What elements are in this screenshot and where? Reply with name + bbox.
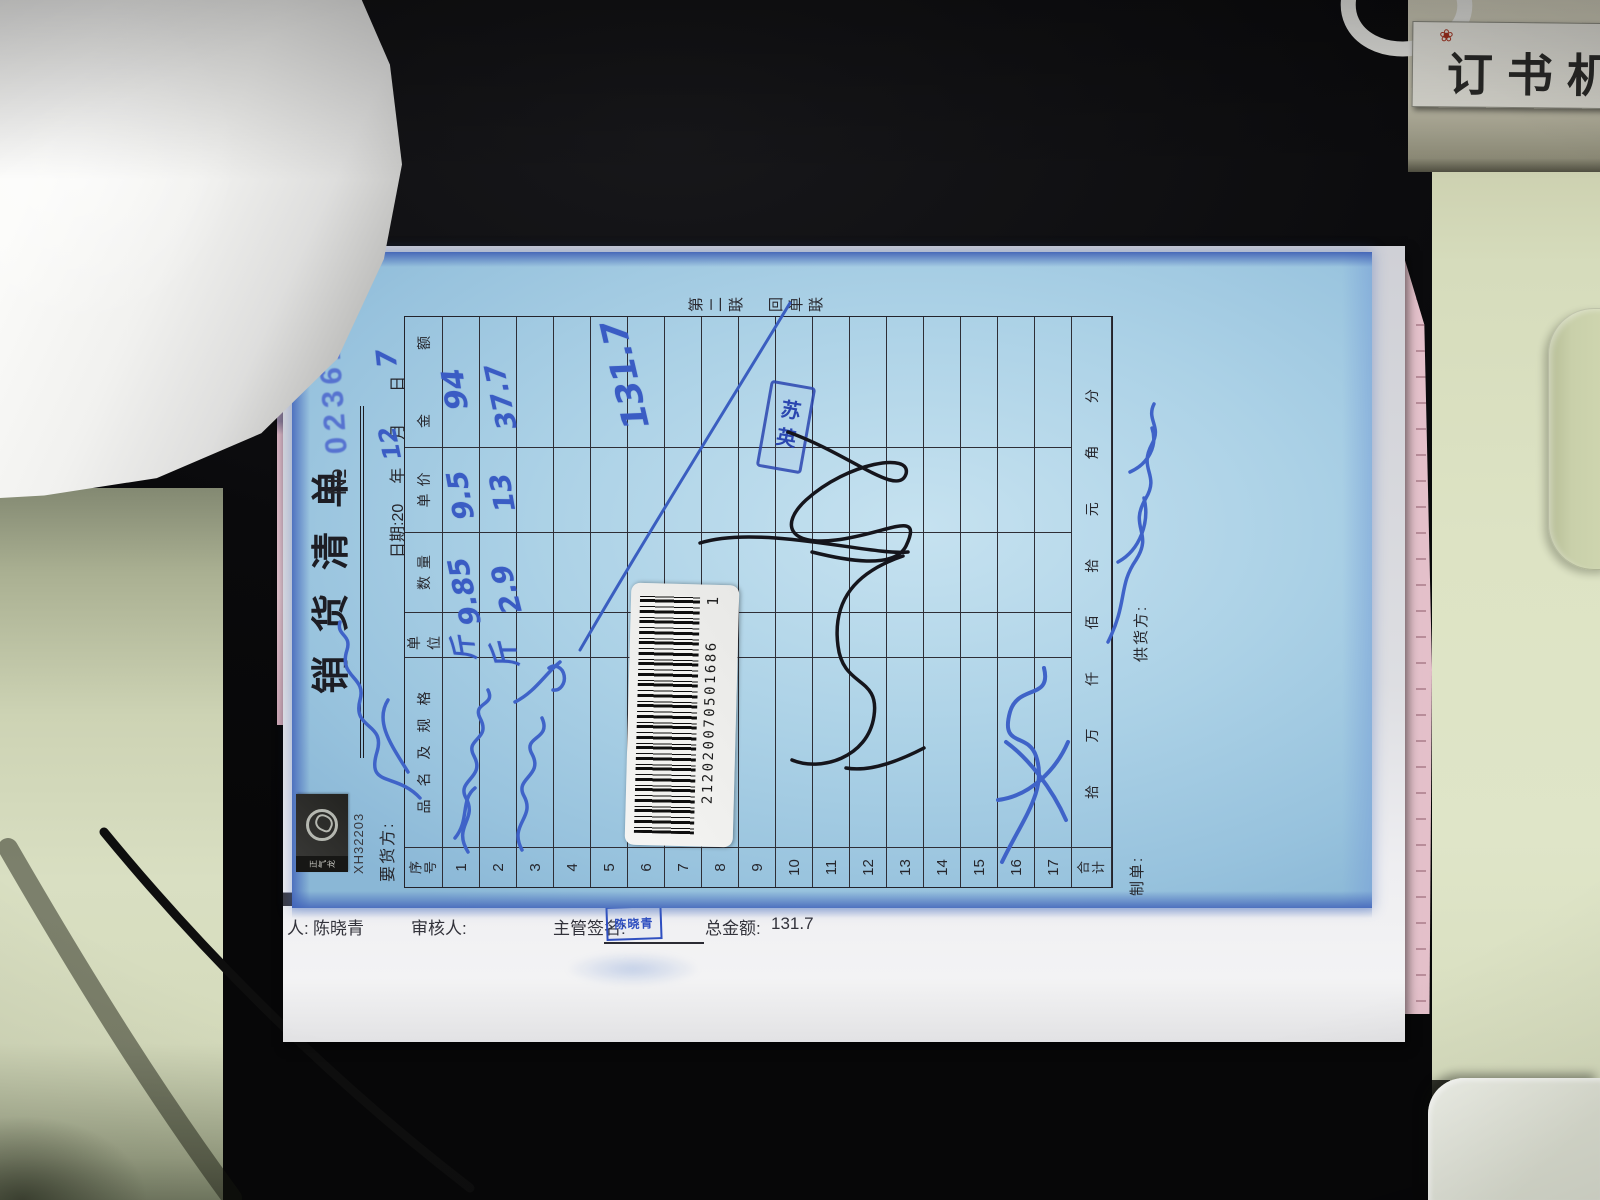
empty-cell [998, 532, 1035, 612]
empty-cell [702, 447, 739, 532]
row-number: 6 [628, 847, 665, 887]
empty-cell [1035, 317, 1072, 447]
empty-cell [887, 447, 924, 532]
row-number: 17 [1035, 847, 1072, 887]
empty-cell [628, 447, 665, 532]
empty-cell [776, 532, 813, 612]
empty-cell [1035, 612, 1072, 657]
logo-ring-wrap [306, 794, 338, 856]
empty-cell [850, 317, 887, 447]
empty-cell [739, 532, 776, 612]
empty-cell [813, 612, 850, 657]
form-code: XH32203 [351, 813, 366, 874]
digit-column-label: 万 [1082, 728, 1102, 742]
empty-cell [591, 532, 628, 612]
copy-number-strip: 第二联 回单联 [688, 295, 828, 316]
empty-cell [998, 657, 1035, 847]
empty-cell [554, 532, 591, 612]
empty-cell [591, 657, 628, 847]
digit-columns: 拾万仟佰拾元角分 [1072, 317, 1112, 847]
empty-cell [887, 657, 924, 847]
empty-cell [850, 657, 887, 847]
header-no: 序号 [405, 847, 443, 887]
empty-cell [961, 317, 998, 447]
empty-cell [813, 657, 850, 847]
digit-column-label: 佰 [1082, 615, 1102, 629]
empty-cell [776, 657, 813, 847]
empty-cell [1035, 657, 1072, 847]
empty-cell [702, 317, 739, 447]
header-qty: 数量 [405, 532, 443, 612]
row-number: 1 [443, 847, 480, 887]
empty-cell [554, 612, 591, 657]
cable-shadow [8, 848, 232, 1198]
total-label: 合计 [1072, 847, 1112, 887]
row-number: 9 [739, 847, 776, 887]
empty-cell [887, 612, 924, 657]
empty-cell [998, 612, 1035, 657]
buyer-label: 要货方: [374, 822, 398, 882]
digit-column-label: 元 [1082, 502, 1102, 516]
hw-row1-amount: 94 [435, 366, 475, 412]
row-number: 13 [887, 847, 924, 887]
empty-cell [813, 532, 850, 612]
barcode-number: 212020070501686 [699, 610, 721, 835]
digit-column-label: 仟 [1082, 672, 1102, 686]
empty-cell [554, 317, 591, 447]
empty-cell [443, 657, 480, 847]
header-unit: 单位 [405, 612, 443, 657]
empty-cell [887, 532, 924, 612]
signature-line [604, 942, 704, 944]
empty-cell [591, 612, 628, 657]
stamp-text: 苏英 [767, 397, 805, 457]
maker-label: 制单: [1126, 856, 1147, 896]
empty-cell [1035, 532, 1072, 612]
device-corner-bottom-right [1428, 1078, 1600, 1200]
brand-logo: 正气龙 [296, 794, 348, 872]
empty-cell [850, 612, 887, 657]
row-number: 7 [665, 847, 702, 887]
empty-cell [998, 317, 1035, 447]
digit-column-label: 拾 [1082, 785, 1102, 799]
hw-row2-price: 13 [483, 470, 522, 514]
logo-text: 正气龙 [296, 856, 348, 872]
blue-ink-smudge [543, 946, 723, 992]
header-price: 单价 [405, 447, 443, 532]
empty-cell [924, 612, 961, 657]
row-number: 10 [776, 847, 813, 887]
barcode-suffix: 1 [704, 597, 722, 606]
empty-cell [591, 447, 628, 532]
empty-cell [517, 657, 554, 847]
device-edge-right [1548, 308, 1600, 570]
empty-cell [961, 612, 998, 657]
empty-cell [1035, 447, 1072, 532]
empty-cell [850, 447, 887, 532]
sales-list-form: 第二联 回单联 正气龙 XH32203 销货清单 №023617 要货方: 日期… [292, 252, 1372, 908]
stapler-label: ❀ 订书机 [1412, 21, 1600, 109]
row-number: 14 [924, 847, 961, 887]
row-number: 8 [702, 847, 739, 887]
row-number: 15 [961, 847, 998, 887]
empty-cell [924, 447, 961, 532]
empty-cell [961, 657, 998, 847]
empty-cell [776, 612, 813, 657]
empty-cell [739, 612, 776, 657]
barcode-bars [634, 595, 700, 834]
empty-cell [665, 317, 702, 447]
serial-prefix: № [322, 468, 352, 496]
stapler-label-text: 订书机 [1447, 38, 1600, 106]
empty-cell [924, 317, 961, 447]
empty-cell [813, 447, 850, 532]
empty-cell [517, 317, 554, 447]
empty-cell [739, 657, 776, 847]
supplier-label: 供货方: [1130, 605, 1151, 662]
empty-cell [924, 532, 961, 612]
empty-cell [924, 657, 961, 847]
handwritten-month: 7 [371, 348, 404, 370]
photo-of-sales-receipt: ❀ 订书机 金额 人: 陈晓青 审核人: 主管签名: 陈晓青 总金额: 131.… [0, 0, 1600, 1200]
empty-cell [961, 447, 998, 532]
row-number: 16 [998, 847, 1035, 887]
empty-cell [850, 532, 887, 612]
empty-cell [517, 447, 554, 532]
desk-surface-right [1432, 0, 1600, 1200]
row-number: 12 [850, 847, 887, 887]
digit-column-label: 角 [1082, 446, 1102, 460]
empty-cell [480, 657, 517, 847]
row-number: 11 [813, 847, 850, 887]
row-number: 4 [554, 847, 591, 887]
digit-column-label: 分 [1082, 389, 1102, 403]
digit-column-label: 拾 [1082, 559, 1102, 573]
dragon-ring-icon [306, 809, 338, 841]
header-name: 品名及规格 [405, 657, 443, 847]
row-number: 5 [591, 847, 628, 887]
empty-cell [887, 317, 924, 447]
empty-cell [961, 532, 998, 612]
empty-cell [554, 447, 591, 532]
empty-cell [813, 317, 850, 447]
row-number: 3 [517, 847, 554, 887]
form-content-rotated: 第二联 回单联 正气龙 XH32203 销货清单 №023617 要货方: 日期… [292, 252, 1372, 908]
row-number: 2 [480, 847, 517, 887]
barcode-sticker: 212020070501686 1 [625, 583, 740, 848]
empty-cell [554, 657, 591, 847]
empty-cell [998, 447, 1035, 532]
empty-cell [665, 447, 702, 532]
